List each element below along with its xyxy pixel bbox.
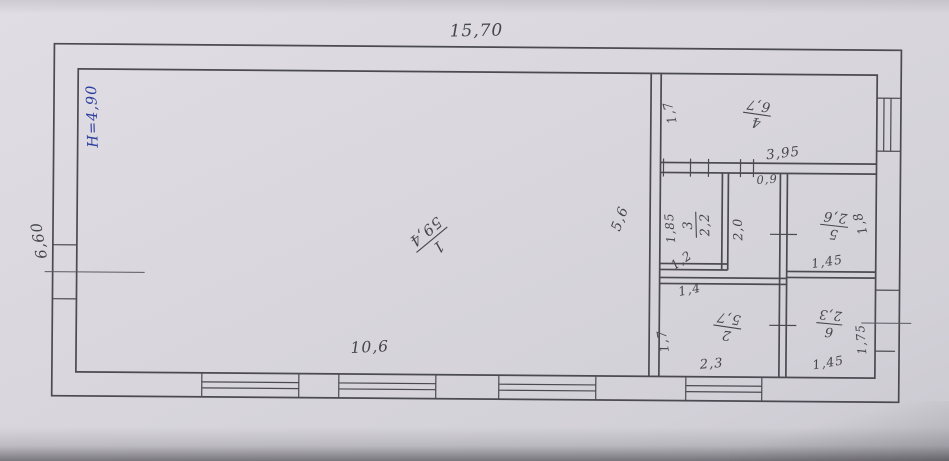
photo-bottom-shade (0, 427, 949, 461)
room5-bottom-wall (787, 271, 876, 278)
dim-room3-left: 1,85 (662, 212, 678, 244)
svg-text:2,3: 2,3 (818, 306, 844, 323)
dim-overall-width: 15,70 (449, 21, 503, 42)
dim-overall-depth: 6,60 (27, 220, 51, 260)
right-wall-window (861, 98, 913, 351)
window-symbol (339, 374, 436, 399)
note-ceiling-height: Н=4,90 (84, 84, 102, 149)
corridor-right-wall (769, 173, 798, 377)
dim-room2-left: 1,7 (653, 329, 672, 354)
outer-wall (52, 44, 902, 403)
dim-hall-depth: 5,6 (608, 204, 632, 233)
svg-text:5: 5 (827, 225, 838, 242)
dim-room4-width: 3,95 (765, 144, 801, 164)
dim-bottom-inner-width: 10,6 (350, 337, 389, 357)
dim-room4-left: 1,7 (659, 100, 679, 126)
svg-text:2,6: 2,6 (822, 208, 849, 227)
svg-text:4: 4 (750, 113, 763, 130)
floor-plan-photo: 15,70 6,60 Н=4,90 10,6 5,6 1 59,4 4 6,7 … (0, 0, 949, 461)
window-symbol (499, 375, 596, 400)
dim-room5-width: 1,45 (810, 252, 844, 272)
room3-label: 3 2,2 (681, 211, 714, 238)
room2-label: 2 5,7 (711, 308, 744, 345)
room6-label: 6 2,3 (815, 306, 844, 340)
dim-room2-width: 2,3 (698, 356, 724, 373)
left-wall-window (44, 245, 144, 300)
dim-room6-right: 1,75 (853, 324, 869, 356)
room1-label: 1 59,4 (404, 212, 459, 267)
room5-label: 5 2,6 (818, 207, 850, 243)
dim-room6-width: 1,45 (811, 352, 845, 372)
dim-room5-right: 1,8 (849, 210, 870, 236)
window-symbol (686, 377, 762, 402)
dim-corridor: 2,0 (730, 218, 746, 242)
svg-text:5,7: 5,7 (715, 308, 742, 327)
floor-plan-drawing: 15,70 6,60 Н=4,90 10,6 5,6 1 59,4 4 6,7 … (0, 0, 949, 461)
svg-text:3: 3 (681, 220, 696, 230)
room4-label: 4 6,7 (741, 95, 774, 132)
window-symbol (202, 373, 299, 398)
building-walls (52, 44, 902, 403)
dim-door-width: 0,9 (756, 172, 778, 187)
svg-text:6: 6 (823, 323, 834, 339)
svg-text:6,7: 6,7 (745, 96, 772, 115)
photo-top-shade (0, 0, 949, 14)
svg-text:2,2: 2,2 (698, 212, 714, 237)
dim-room3-width: 1,4 (677, 280, 702, 299)
svg-text:2: 2 (720, 326, 733, 343)
